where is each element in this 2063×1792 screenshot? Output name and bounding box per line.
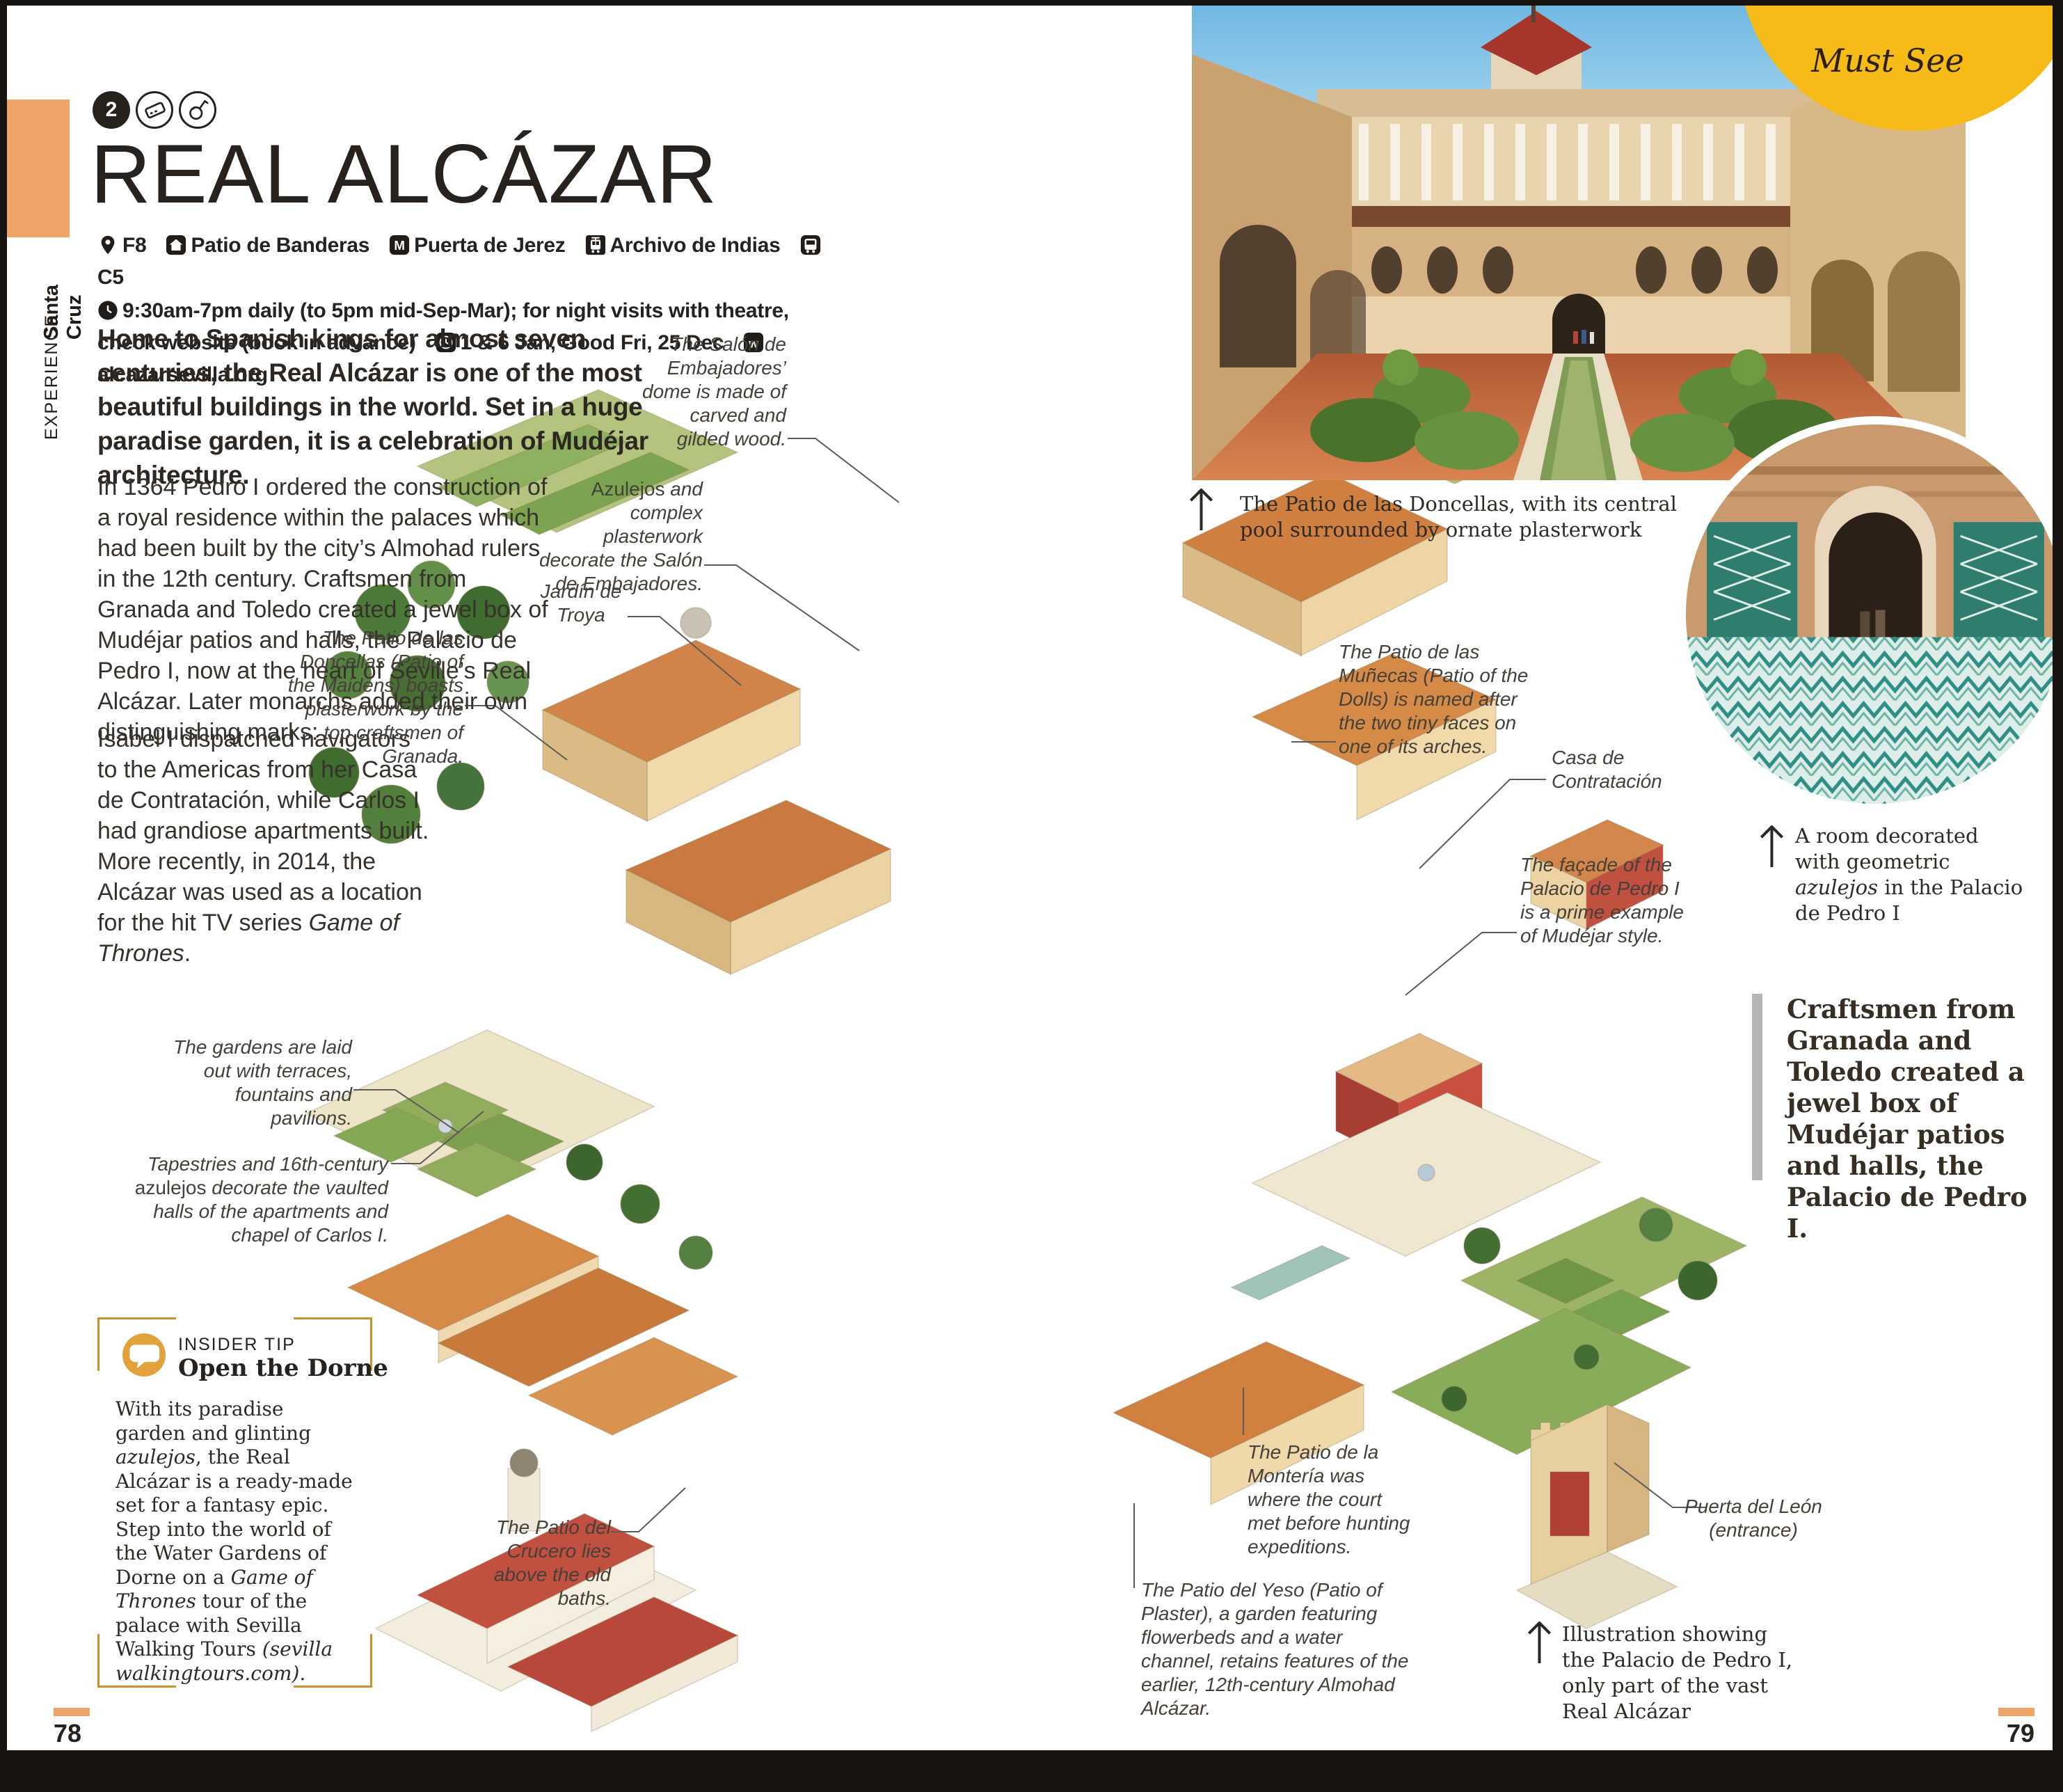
metro-icon: M: [389, 233, 410, 254]
annotation-puerta-leon: Puerta del León (entrance): [1684, 1495, 1823, 1542]
annotation-yeso: The Patio del Yeso (Patio of Plaster), a…: [1141, 1578, 1416, 1720]
pointing-hand-icon: [179, 91, 216, 129]
annotation-gardens: The gardens are laid out with terraces, …: [159, 1036, 352, 1130]
page-frame-top: [0, 0, 2063, 6]
up-arrow-icon: ↑: [1748, 820, 1796, 877]
annotation-line: (entrance): [1684, 1519, 1823, 1542]
annotation-azulejos-plasterwork: Azulejos and complex plasterwork decorat…: [526, 477, 703, 596]
info-line-1: F8 Patio de Banderas MPuerta de Jerez Ar…: [97, 230, 849, 294]
house-icon: [166, 233, 186, 254]
annotation-jardin-troya: Jardín de Troya: [534, 580, 628, 627]
page-frame-left: [0, 0, 7, 1792]
insider-tip-title: Open the Dorne: [178, 1354, 388, 1382]
caption-text: A room decorated with geometric: [1795, 824, 1979, 873]
body-text-end: .: [184, 940, 191, 967]
annotation-crucero: The Patio del Crucero lies above the old…: [454, 1516, 611, 1610]
page-number-right: 79: [1998, 1719, 2034, 1748]
page-number-left: 78: [54, 1719, 81, 1748]
main-photo-caption: The Patio de las Doncellas, with its cen…: [1240, 491, 1685, 543]
ticket-icon: [136, 91, 173, 129]
pull-quote: Craftsmen from Granada and Toledo create…: [1787, 994, 2030, 1244]
intro-paragraph: Home to Spanish kings for almost seven c…: [97, 322, 710, 492]
annotation-line: Puerta del León: [1684, 1495, 1823, 1519]
annotation-roman: azulejos: [135, 1177, 207, 1198]
page-title: REAL ALCÁZAR: [90, 132, 717, 216]
annotation-italic: The Patio del Yeso (Patio of Plaster), a…: [1141, 1579, 1408, 1719]
tram-stop: Archivo de Indias: [610, 234, 781, 257]
speech-bubble-icon: [122, 1333, 166, 1377]
circle-photo-caption: A room decorated with geometric azulejos…: [1795, 823, 2025, 926]
annotation-munecas: The Patio de las Muñecas (Patio of the D…: [1339, 640, 1544, 759]
page-gutter: [1074, 376, 1116, 1733]
pull-quote-bar: [1752, 994, 1762, 1180]
annotation-tapestries: Tapestries and 16th-century azulejos dec…: [97, 1152, 388, 1247]
up-arrow-icon: ↑: [1177, 483, 1225, 540]
annotation-casa-contratacion: Casa de Contratación: [1552, 746, 1705, 793]
insider-tip-label: INSIDER TIP: [178, 1335, 296, 1355]
annotation-salon-dome: The Salón de Embajadores’ dome is made o…: [639, 333, 786, 451]
tip-text: With its paradise garden and glinting: [116, 1397, 311, 1445]
map-grid-ref: F8: [122, 234, 146, 257]
sidebar-section-label: EXPERIENCE: [42, 335, 62, 440]
annotation-monteria: The Patio de la Montería was where the c…: [1248, 1441, 1418, 1559]
sidebar-tab: [7, 100, 70, 237]
tip-text: .: [299, 1662, 305, 1685]
page-frame-bottom: [0, 1750, 2063, 1792]
page-frame-right: [2053, 0, 2063, 1792]
annotation-italic: Tapestries and 16th-century: [148, 1153, 388, 1175]
up-arrow-icon: ↑: [1515, 1616, 1563, 1673]
tram-icon: [585, 233, 606, 254]
bus-icon: [800, 233, 821, 254]
map-pin-icon: [97, 233, 118, 254]
clock-icon: [97, 299, 118, 319]
illustration-caption: Illustration showing the Palacio de Pedr…: [1562, 1621, 1799, 1724]
page-dash-right: [1998, 1708, 2034, 1716]
metro-station: Puerta de Jerez: [414, 234, 565, 257]
annotation-doncellas: The Patio de las Doncellas (Patio of the…: [277, 626, 463, 768]
circle-photo: [1686, 425, 2063, 804]
page-spread: Santa Cruz EXPERIENCE 2 REAL ALCÁZAR F8 …: [0, 0, 2063, 1792]
caption-italic: azulejos: [1795, 875, 1878, 899]
svg-text:M: M: [395, 238, 405, 253]
map-ref-badge: 2: [93, 91, 130, 129]
nearest-sight: Patio de Banderas: [191, 234, 369, 257]
annotation-facade: The façade of the Palacio de Pedro I is …: [1520, 853, 1691, 948]
must-see-label: Must See: [1738, 42, 2037, 79]
page-dash-left: [54, 1708, 90, 1716]
insider-tip-body: With its paradise garden and glinting az…: [116, 1397, 358, 1686]
tip-italic: azulejos: [116, 1445, 196, 1468]
bus-route: C5: [97, 266, 124, 289]
annotation-roman: Azulejos: [591, 478, 665, 500]
